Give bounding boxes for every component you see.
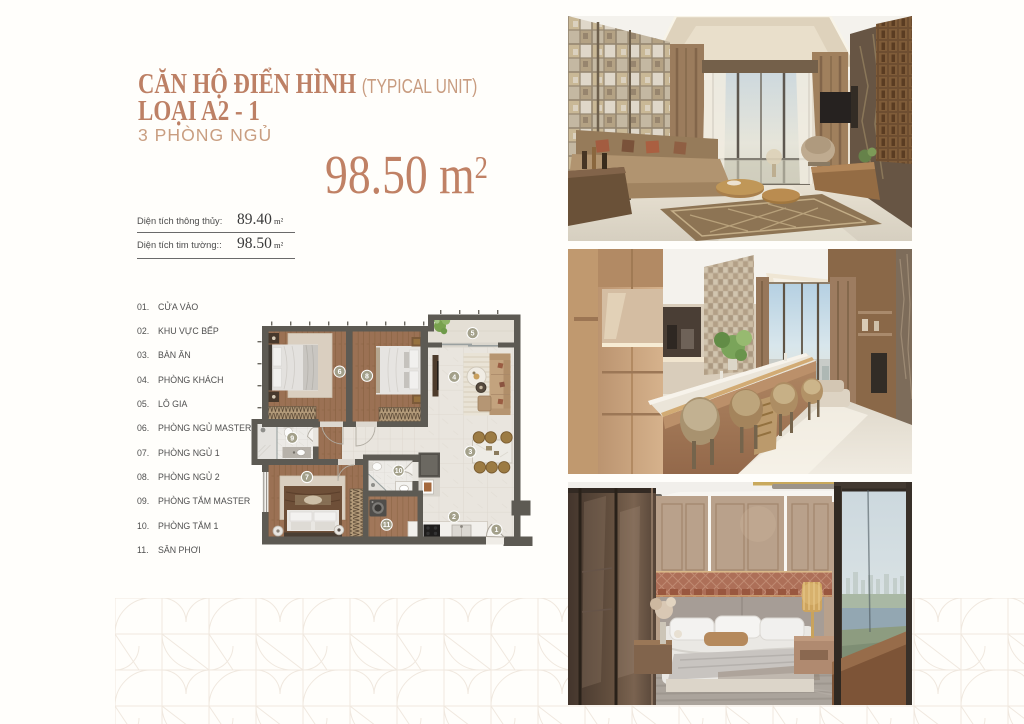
svg-text:2: 2 <box>452 514 456 521</box>
svg-text:9: 9 <box>290 435 294 442</box>
svg-text:6: 6 <box>338 369 342 376</box>
svg-text:5: 5 <box>471 331 475 338</box>
svg-text:8: 8 <box>365 373 369 380</box>
svg-text:4: 4 <box>452 374 456 381</box>
svg-text:11: 11 <box>383 522 391 529</box>
svg-text:1: 1 <box>494 527 498 534</box>
svg-text:7: 7 <box>305 475 309 482</box>
svg-text:10: 10 <box>395 468 403 475</box>
svg-text:3: 3 <box>468 449 472 456</box>
